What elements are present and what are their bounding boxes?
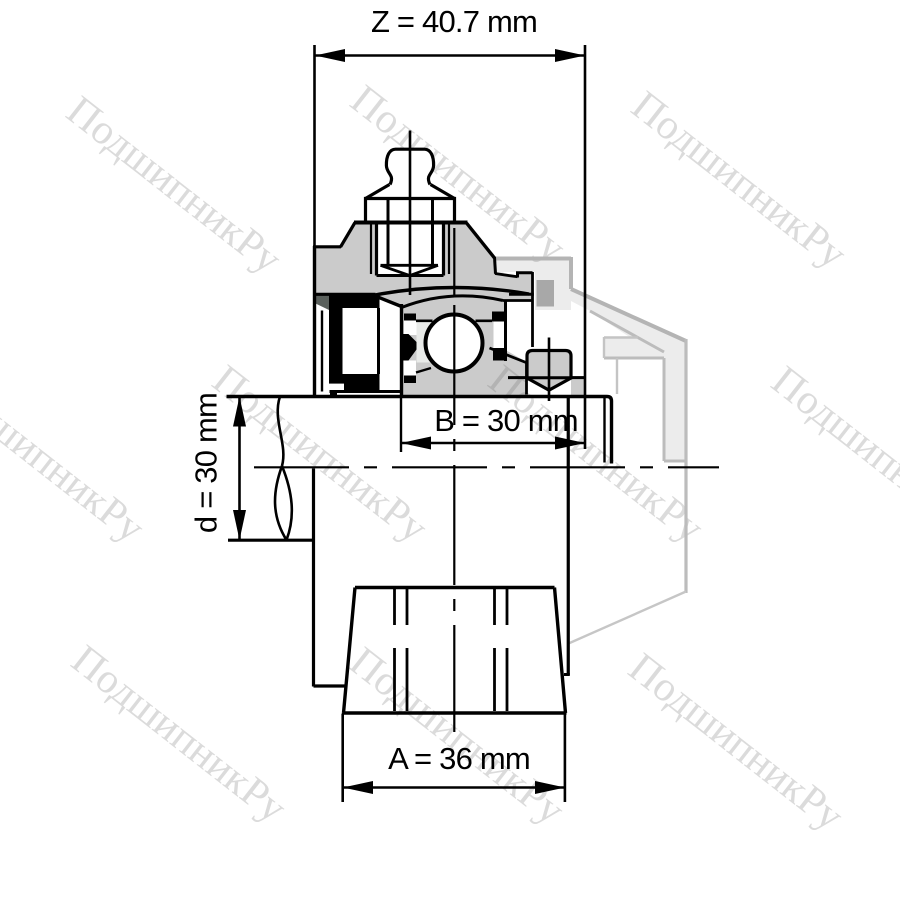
svg-text:B = 30 mm: B = 30 mm — [434, 403, 578, 438]
svg-text:A = 36 mm: A = 36 mm — [388, 741, 530, 776]
svg-text:Z = 40.7 mm: Z = 40.7 mm — [371, 4, 537, 39]
svg-text:d = 30 mm: d = 30 mm — [189, 393, 224, 533]
